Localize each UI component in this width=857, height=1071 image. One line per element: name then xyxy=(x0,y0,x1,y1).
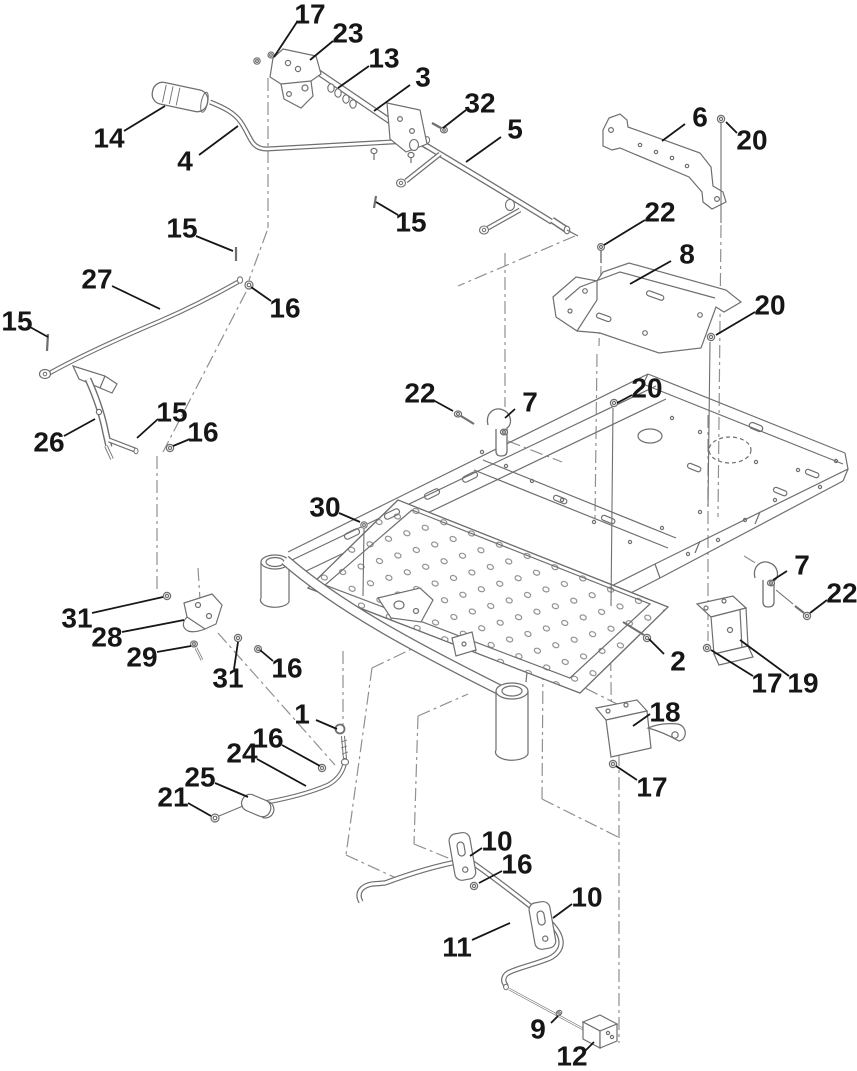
callout-15-21: 15 xyxy=(156,397,187,428)
bolt-22-c xyxy=(776,590,811,620)
nut-21 xyxy=(211,806,243,822)
leader-line-23-1 xyxy=(310,41,333,60)
callout-29-29: 29 xyxy=(126,642,157,673)
leader-line-5-5 xyxy=(466,137,501,162)
leader-line-15-11 xyxy=(196,236,233,251)
deck-holes xyxy=(480,416,837,555)
leader-line-31-27 xyxy=(92,597,163,613)
callout-24-38: 24 xyxy=(226,738,258,769)
callout-21-41: 21 xyxy=(157,782,188,813)
pin-1 xyxy=(336,725,349,764)
callout-8-16: 8 xyxy=(679,239,695,270)
leader-line-29-29 xyxy=(157,646,191,652)
leader-line-6-6 xyxy=(662,124,685,141)
nut-17-c xyxy=(609,760,616,767)
washer-16-lever xyxy=(166,444,173,451)
callout-10-44: 10 xyxy=(571,882,602,913)
callout-6-6: 6 xyxy=(692,102,708,133)
callout-17-33: 17 xyxy=(751,668,782,699)
hook-7-right xyxy=(754,562,777,607)
callout-17-0: 17 xyxy=(294,0,325,30)
parts-diagram-page: 1723133325620144151516271522820227201516… xyxy=(0,0,857,1071)
leader-line-9-46 xyxy=(551,1016,558,1023)
bracket-28-group xyxy=(163,592,261,660)
leader-line-16-37 xyxy=(282,745,320,766)
callout-9-46: 9 xyxy=(530,1014,546,1045)
callout-11-45: 11 xyxy=(442,932,472,963)
leader-line-15-14 xyxy=(30,327,48,337)
washer-16-e xyxy=(470,882,477,889)
callout-13-2: 13 xyxy=(368,43,399,74)
leader-line-2-30 xyxy=(649,639,664,654)
callout-18-36: 18 xyxy=(649,697,680,728)
callout-30-24: 30 xyxy=(309,492,340,523)
callout-22-26: 22 xyxy=(826,578,857,609)
leader-line-22-15 xyxy=(604,220,645,245)
upper-right-hardware xyxy=(553,114,741,606)
callout-15-10: 15 xyxy=(395,207,426,238)
leader-line-27-13 xyxy=(112,286,160,309)
callout-2-30: 2 xyxy=(670,646,686,677)
callout-5-5: 5 xyxy=(507,114,523,145)
bolt-22-b xyxy=(454,411,474,424)
callout-16-43: 16 xyxy=(501,849,532,880)
leader-line-15-21 xyxy=(137,419,158,438)
callout-22-18: 22 xyxy=(404,378,435,409)
leader-line-28-28 xyxy=(122,620,184,632)
leader-line-11-45 xyxy=(472,923,510,940)
callout-31-31: 31 xyxy=(212,663,243,694)
leader-line-24-38 xyxy=(257,759,306,786)
connector-12 xyxy=(583,1015,617,1048)
callout-16-32: 16 xyxy=(271,653,302,684)
callout-1-35: 1 xyxy=(294,699,310,730)
callout-12-47: 12 xyxy=(556,1041,587,1071)
leader-line-26-23 xyxy=(64,419,95,436)
bolt-29 xyxy=(191,641,202,660)
callout-15-11: 15 xyxy=(166,213,197,244)
callout-16-22: 16 xyxy=(187,417,218,448)
callout-20-17: 20 xyxy=(754,290,785,321)
leader-line-25-39 xyxy=(215,783,248,797)
callout-32-4: 32 xyxy=(464,88,495,119)
leader-line-14-8 xyxy=(124,106,165,131)
callout-15-14: 15 xyxy=(1,306,32,337)
callout-4-9: 4 xyxy=(177,146,193,177)
callout-22-15: 22 xyxy=(644,197,675,228)
leader-line-22-18 xyxy=(433,400,453,411)
bracket-10-a xyxy=(448,831,477,881)
callout-14-8: 14 xyxy=(93,123,125,154)
leader-line-20-7 xyxy=(726,122,737,133)
bolt-20-c xyxy=(610,399,617,606)
leader-line-21-41 xyxy=(188,803,211,816)
fasteners-17-top xyxy=(254,52,274,64)
bolt-20-a xyxy=(717,115,724,223)
leader-line-22-26 xyxy=(810,600,827,613)
callout-19-34: 19 xyxy=(787,668,818,699)
leader-line-4-9 xyxy=(199,126,238,155)
callout-23-1: 23 xyxy=(332,18,363,49)
leader-line-10-44 xyxy=(553,904,572,918)
callout-26-23: 26 xyxy=(33,427,64,458)
bolt-22-a xyxy=(598,244,605,263)
washer-31-a xyxy=(163,592,170,599)
callout-20-7: 20 xyxy=(736,125,767,156)
callout-3-3: 3 xyxy=(415,62,431,93)
callout-7-25: 7 xyxy=(794,550,810,581)
rod-27-lever-26 xyxy=(40,247,254,459)
bracket-10-b xyxy=(528,900,557,950)
lever-26 xyxy=(73,366,138,459)
callout-7-19: 7 xyxy=(522,387,538,418)
callout-28-28: 28 xyxy=(91,622,122,653)
leader-line-1-35 xyxy=(316,720,337,729)
nut-31-b xyxy=(234,634,241,641)
callout-20-20: 20 xyxy=(631,373,662,404)
callout-17-40: 17 xyxy=(636,772,667,803)
leader-line-32-4 xyxy=(443,110,466,128)
callout-27-13: 27 xyxy=(81,264,112,295)
leader-line-13-2 xyxy=(338,66,369,88)
callout-25-39: 25 xyxy=(184,762,215,793)
bracket-28 xyxy=(183,594,222,632)
leader-line-20-17 xyxy=(716,312,755,335)
bracket-19 xyxy=(697,596,753,665)
bolt-32 xyxy=(432,123,447,133)
callout-31-27: 31 xyxy=(61,603,92,634)
stabilizer-rod-group xyxy=(359,831,617,1048)
exploded-parts-diagram: 1723133325620144151516271522820227201516… xyxy=(0,0,857,1071)
nut-17-b xyxy=(703,644,710,651)
leader-line-16-12 xyxy=(251,287,271,301)
callout-16-12: 16 xyxy=(269,293,300,324)
